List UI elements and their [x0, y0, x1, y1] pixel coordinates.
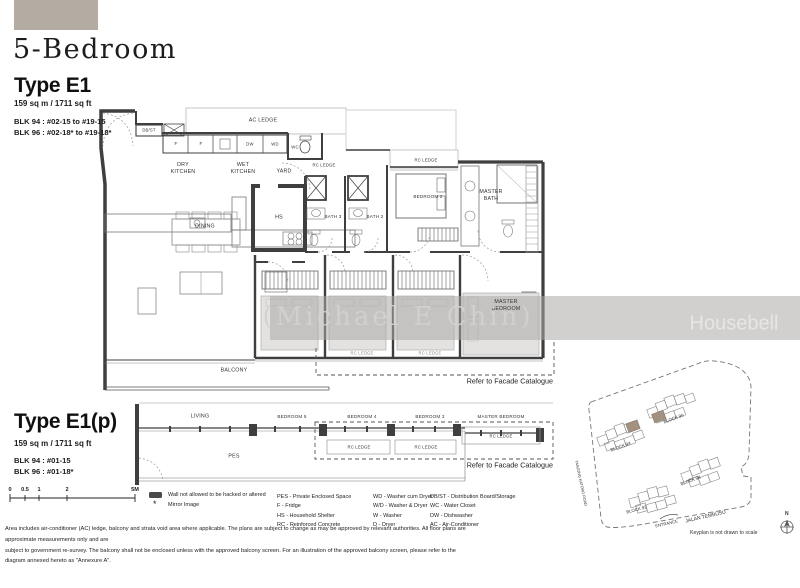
legend-item: W/D - Washer & Dryer — [373, 502, 433, 511]
plan-e1-geometry — [101, 108, 554, 390]
facade-note-e1: Refer to Facade Catalogue — [467, 377, 553, 386]
room-label-fridge-1: F — [174, 141, 177, 147]
room-label-wet-kitchen: WET KITCHEN — [229, 162, 257, 176]
scale-tick-05: 0.5 — [21, 487, 29, 493]
e1p-label-rc-ledge-2: RC LEDGE — [414, 444, 437, 449]
compass-icon — [780, 520, 794, 534]
room-label-bedroom2: BEDROOM 2 — [413, 194, 442, 200]
watermark-brand: Housebell — [690, 313, 779, 336]
legend-item: W - Washer — [373, 512, 433, 521]
keyplan-note: Keyplan is not drawn to scale — [690, 530, 757, 536]
room-label-fridge-2: F — [199, 141, 202, 147]
room-label-wd: WD — [271, 141, 278, 146]
disclaimer-line-1: Area includes air-conditioner (AC) ledge… — [5, 524, 475, 546]
unit-e1p-block-96: BLK 96 : #01-18* — [14, 467, 74, 476]
scale-tick-5m: 5M — [131, 487, 139, 493]
unit-type-e1-heading: Type E1 — [14, 74, 91, 98]
unit-e1-block-94: BLK 94 : #02-15 to #19-15 — [14, 117, 106, 126]
room-label-rc-ledge-bed4: RC LEDGE — [350, 350, 373, 355]
scale-tick-2: 2 — [65, 487, 68, 493]
floorplan-page: 5-Bedroom Type E1 159 sq m / 1711 sq ft … — [0, 0, 800, 588]
page-title: 5-Bedroom — [13, 34, 177, 65]
e1p-label-bedroom5: BEDROOM 5 — [277, 414, 306, 420]
room-label-hs: HS — [275, 215, 283, 222]
room-label-dry-kitchen: DRY KITCHEN — [169, 162, 197, 176]
disclaimer-line-2: subject to government re-survey. The bal… — [5, 546, 475, 568]
room-label-rc-ledge-bed3: RC LEDGE — [418, 350, 441, 355]
unit-e1-area: 159 sq m / 1711 sq ft — [14, 99, 91, 108]
e1p-label-rc-ledge-1: RC LEDGE — [347, 444, 370, 449]
room-label-bath3: BATH 3 — [325, 214, 342, 220]
e1p-label-pes: PES — [228, 454, 239, 461]
e1p-label-bedroom3: BEDROOM 3 — [415, 414, 444, 420]
room-label-dw: DW — [246, 141, 253, 146]
room-label-rc-ledge-yard: RC LEDGE — [312, 162, 335, 167]
room-label-balcony: BALCONY — [221, 368, 248, 375]
room-label-bath2: BATH 2 — [367, 214, 384, 220]
scale-tick-0: 0 — [8, 487, 11, 493]
unit-e1p-area: 159 sq m / 1711 sq ft — [14, 439, 91, 448]
e1p-label-master-bedroom: MASTER BEDROOM — [478, 414, 525, 420]
room-label-wc: WC — [291, 144, 298, 149]
e1p-label-bedroom4: BEDROOM 4 — [347, 414, 376, 420]
e1p-label-rc-ledge-3: RC LEDGE — [489, 433, 512, 438]
unit-e1-block-96: BLK 96 : #02-18* to #19-18* — [14, 128, 112, 137]
legend-item: WD - Washer cum Dryer — [373, 493, 433, 502]
room-label-dining: DINING — [195, 224, 215, 231]
legend-item: DW - Dishwasher — [430, 512, 516, 521]
facade-note-e1p: Refer to Facade Catalogue — [467, 461, 553, 470]
legend-item: HS - Household Shelter — [277, 512, 351, 521]
scale-bar — [10, 494, 135, 502]
legend-item: WC - Water Closet — [430, 502, 516, 511]
disclaimer: Area includes air-conditioner (AC) ledge… — [5, 524, 475, 567]
header-color-swatch — [14, 0, 98, 30]
room-label-yard: YARD — [276, 169, 291, 176]
scale-tick-1: 1 — [37, 487, 40, 493]
unit-e1p-block-94: BLK 94 : #01-15 — [14, 456, 71, 465]
legend-item: PES - Private Enclosed Space — [277, 493, 351, 502]
legend-item: DB/ST - Distribution Board/Storage — [430, 493, 516, 502]
wall-symbol — [149, 492, 162, 498]
e1p-label-living: LIVING — [191, 414, 210, 421]
mirror-image-symbol: * — [153, 499, 157, 509]
room-label-db-st: DB/ST — [142, 127, 155, 132]
watermark-agent: (Michael E Chin) — [263, 302, 534, 332]
room-label-master-bath: MASTER BATH — [477, 189, 505, 203]
legend-item: F - Fridge — [277, 502, 351, 511]
room-label-ac-ledge: AC LEDGE — [249, 118, 277, 125]
compass-north-label: N — [785, 511, 789, 517]
legend-wall-note: Wall not allowed to be hacked or altered — [168, 491, 266, 500]
legend-mirror-note: Mirror Image — [168, 501, 199, 510]
unit-type-e1p-heading: Type E1(p) — [14, 410, 117, 434]
room-label-rc-ledge-bed2: RC LEDGE — [414, 157, 437, 162]
